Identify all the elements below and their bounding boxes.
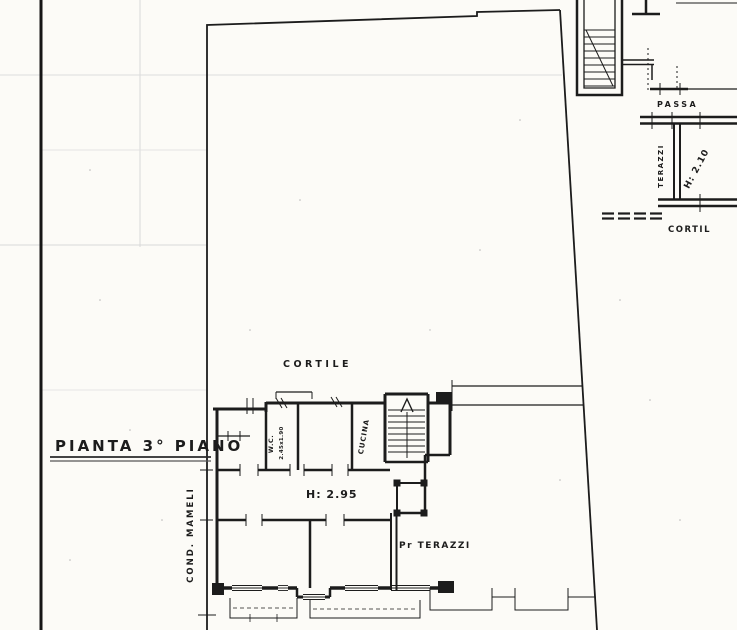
- wc-label: W.C.: [267, 435, 275, 453]
- scanned-floorplan-sheet: PIANTA 3° PIANO CORTILE COND. MAMELI H: …: [0, 0, 737, 630]
- courtyard-label: CORTILE: [283, 359, 352, 370]
- street-label: COND. MAMELI: [186, 487, 196, 583]
- adjacent-courtyard-label: CORTIL: [668, 225, 711, 235]
- paper-background: [0, 0, 737, 630]
- room-height-label: H: 2.95: [306, 488, 358, 501]
- wc-dimension-label: 2.45x1.90: [279, 426, 285, 459]
- adjacent-terrace-label: TERAZZI: [657, 144, 665, 188]
- passage-label: PASSA: [657, 100, 698, 109]
- plan-title: PIANTA 3° PIANO: [55, 437, 243, 455]
- terrace-access-label: Pr TERAZZI: [399, 541, 471, 551]
- floorplan-canvas: PIANTA 3° PIANO CORTILE COND. MAMELI H: …: [0, 0, 737, 630]
